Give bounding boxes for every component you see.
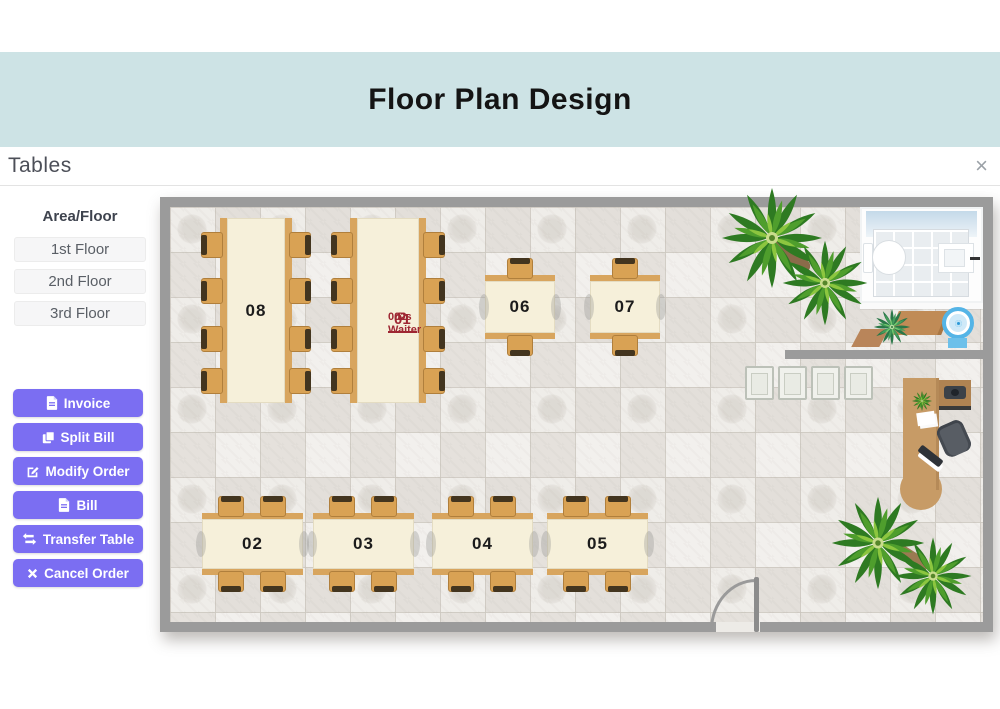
split-bill-copy-icon xyxy=(42,431,55,444)
chair xyxy=(201,368,223,394)
table-03[interactable]: 03 xyxy=(313,513,414,575)
chair xyxy=(260,571,286,592)
table-05[interactable]: 05 xyxy=(547,513,648,575)
transfer-table-label: Transfer Table xyxy=(43,532,134,547)
chair xyxy=(448,496,474,517)
papers xyxy=(916,411,936,426)
bill-label: Bill xyxy=(76,498,97,513)
close-icon[interactable]: × xyxy=(975,155,988,177)
chair xyxy=(329,571,355,592)
chair xyxy=(260,496,286,517)
sink-basin xyxy=(944,249,965,267)
table-number: 04 xyxy=(472,534,493,554)
sink-icon xyxy=(938,243,974,273)
chair xyxy=(329,496,355,517)
chair xyxy=(423,232,445,258)
entrance-door xyxy=(754,577,759,632)
page-title: Floor Plan Design xyxy=(368,83,632,117)
partition-wall xyxy=(785,350,983,359)
chair xyxy=(490,571,516,592)
table-04[interactable]: 04 xyxy=(432,513,533,575)
modal-title: Tables xyxy=(8,154,72,178)
side-seat xyxy=(644,531,654,557)
chair xyxy=(201,232,223,258)
chair xyxy=(507,258,533,279)
chair xyxy=(507,335,533,356)
desk-plant-icon xyxy=(911,390,933,412)
floor-plan-canvas: 08 01 Ds Waiter 002 06 07 xyxy=(160,197,993,632)
chair xyxy=(218,571,244,592)
water-dispenser-icon xyxy=(942,307,974,339)
waiting-chairs-row xyxy=(745,366,877,402)
chair xyxy=(331,232,353,258)
invoice-file-icon xyxy=(46,396,58,410)
chair xyxy=(563,571,589,592)
table-number: 02 xyxy=(242,534,263,554)
chair xyxy=(218,496,244,517)
table-02[interactable]: 02 xyxy=(202,513,303,575)
top-whitespace xyxy=(0,0,1000,52)
chair xyxy=(289,368,311,394)
side-seat xyxy=(529,531,539,557)
cancel-order-button[interactable]: Cancel Order xyxy=(13,559,143,587)
printer-icon xyxy=(944,386,966,399)
floor-button-3rd[interactable]: 3rd Floor xyxy=(14,301,146,326)
split-bill-button[interactable]: Split Bill xyxy=(13,423,143,451)
chair xyxy=(371,496,397,517)
chair xyxy=(331,368,353,394)
side-seat xyxy=(551,294,561,320)
app-header: Floor Plan Design xyxy=(0,52,1000,147)
cancel-order-label: Cancel Order xyxy=(44,566,129,581)
office-chair-icon xyxy=(934,418,973,460)
cancel-x-icon xyxy=(27,568,38,579)
dispenser-stand xyxy=(948,338,967,348)
side-seat xyxy=(410,531,420,557)
side-seat xyxy=(426,531,436,557)
modify-order-button[interactable]: Modify Order xyxy=(13,457,143,485)
table-01[interactable]: 01 Ds Waiter 002 xyxy=(350,218,426,403)
table-number: 03 xyxy=(353,534,374,554)
chair xyxy=(448,571,474,592)
sidebar: Area/Floor 1st Floor 2nd Floor 3rd Floor… xyxy=(0,208,160,333)
waiting-chair xyxy=(811,366,840,400)
table-number: 05 xyxy=(587,534,608,554)
invoice-label: Invoice xyxy=(64,396,111,411)
area-floor-heading: Area/Floor xyxy=(0,208,160,225)
floor-button-2nd[interactable]: 2nd Floor xyxy=(14,269,146,294)
chair xyxy=(423,368,445,394)
split-bill-label: Split Bill xyxy=(61,430,115,445)
table-number: 06 xyxy=(510,297,531,317)
chair xyxy=(563,496,589,517)
modify-order-edit-icon xyxy=(26,465,39,478)
transfer-table-button[interactable]: Transfer Table xyxy=(13,525,143,553)
table-number: 07 xyxy=(615,297,636,317)
waiting-chair xyxy=(745,366,774,400)
chair xyxy=(331,326,353,352)
toilet-icon xyxy=(872,240,906,275)
table-08[interactable]: 08 xyxy=(220,218,292,403)
side-seat xyxy=(584,294,594,320)
transfer-arrows-icon xyxy=(22,533,37,545)
waiter-code: 002 xyxy=(388,311,406,325)
chair xyxy=(201,326,223,352)
side-seat xyxy=(307,531,317,557)
waiting-chair xyxy=(844,366,873,400)
sink-tap xyxy=(970,257,980,260)
order-actions: Invoice Split Bill Modify Order Bill Tra… xyxy=(13,389,143,593)
chair xyxy=(605,496,631,517)
small-plant-icon xyxy=(872,307,912,347)
table-number: 08 xyxy=(246,301,267,321)
chair xyxy=(423,326,445,352)
bill-file-icon xyxy=(58,498,70,512)
table-07[interactable]: 07 xyxy=(590,275,660,339)
reception-desk xyxy=(903,378,985,512)
tables-modal-header: Tables × xyxy=(0,147,1000,186)
seat xyxy=(751,373,768,395)
side-seat xyxy=(656,294,666,320)
modify-order-label: Modify Order xyxy=(45,464,129,479)
seat xyxy=(817,373,834,395)
side-seat xyxy=(541,531,551,557)
seat xyxy=(784,373,801,395)
chair xyxy=(423,278,445,304)
invoice-button[interactable]: Invoice xyxy=(13,389,143,417)
chair xyxy=(289,326,311,352)
chair xyxy=(201,278,223,304)
chair xyxy=(289,278,311,304)
bathroom xyxy=(860,207,983,350)
plant-icon xyxy=(781,239,869,327)
side-seat xyxy=(196,531,206,557)
chair xyxy=(289,232,311,258)
side-seat xyxy=(479,294,489,320)
door-swing-arc xyxy=(710,579,756,630)
chair xyxy=(605,571,631,592)
table-06[interactable]: 06 xyxy=(485,275,555,339)
chair xyxy=(612,258,638,279)
chair xyxy=(612,335,638,356)
chair xyxy=(371,571,397,592)
waiting-chair xyxy=(778,366,807,400)
plant-icon xyxy=(893,536,973,616)
chair xyxy=(331,278,353,304)
bill-button[interactable]: Bill xyxy=(13,491,143,519)
seat xyxy=(850,373,867,395)
floor-button-1st[interactable]: 1st Floor xyxy=(14,237,146,262)
chair xyxy=(490,496,516,517)
bathroom-room xyxy=(860,207,983,303)
